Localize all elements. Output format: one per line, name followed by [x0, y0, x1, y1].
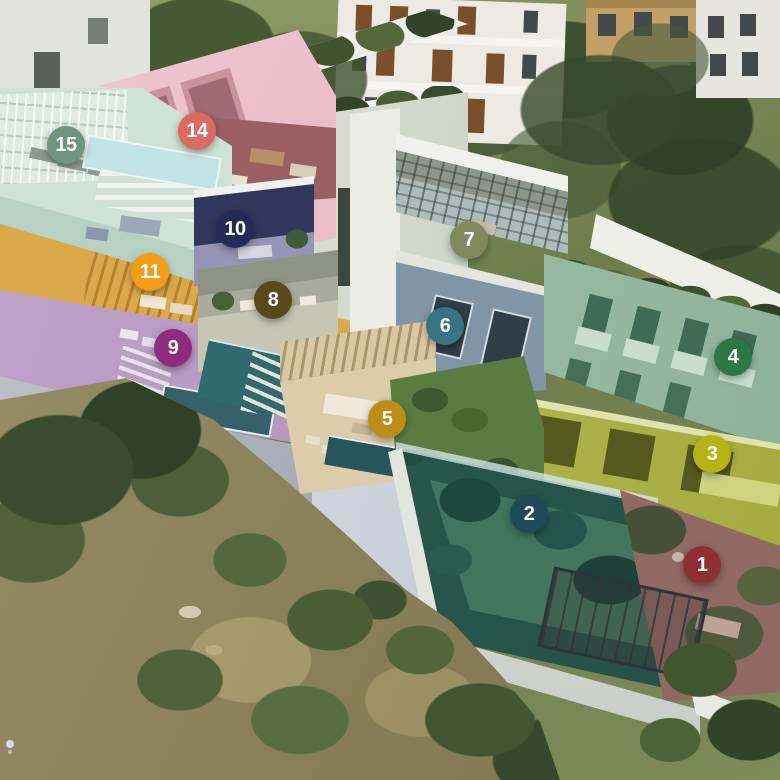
chair	[119, 329, 138, 341]
deck-table	[249, 148, 285, 167]
unit-badge-6[interactable]: 6	[426, 307, 464, 345]
chair	[305, 435, 320, 445]
unit-badge-number: 2	[524, 503, 535, 526]
trees-southeast	[640, 610, 780, 780]
unit-badge-number: 14	[186, 120, 207, 143]
unit-badge-4[interactable]: 4	[714, 338, 752, 376]
unit-badge-number: 6	[440, 315, 451, 338]
window	[602, 428, 655, 481]
balcony	[670, 350, 707, 376]
unit-badge-number: 15	[55, 134, 76, 157]
unit-badge-8[interactable]: 8	[254, 281, 292, 319]
potted-plant	[210, 290, 236, 312]
potted-plant	[284, 228, 310, 250]
unit-badge-number: 9	[168, 337, 179, 360]
unit-badge-11[interactable]: 11	[131, 253, 169, 291]
unit-badge-9[interactable]: 9	[154, 329, 192, 367]
unit-badge-number: 3	[707, 443, 718, 466]
street-lamp	[6, 740, 14, 748]
unit-badge-number: 5	[382, 408, 393, 431]
unit-badge-3[interactable]: 3	[693, 435, 731, 473]
unit-badge-5[interactable]: 5	[368, 400, 406, 438]
chair	[300, 295, 317, 305]
unit-badge-number: 8	[268, 289, 279, 312]
unit-badge-number: 4	[728, 346, 739, 369]
unit-badge-1[interactable]: 1	[683, 546, 721, 584]
unit-badge-number: 10	[224, 218, 245, 241]
unit-badge-2[interactable]: 2	[510, 495, 548, 533]
balcony	[574, 326, 611, 352]
unit-badge-15[interactable]: 15	[47, 126, 85, 164]
unit-badge-number: 11	[140, 261, 160, 284]
unit-badge-10[interactable]: 10	[216, 210, 254, 248]
balcony	[699, 471, 780, 507]
unit-badge-7[interactable]: 7	[450, 221, 488, 259]
balcony	[622, 338, 659, 364]
unit-badge-number: 7	[464, 229, 475, 252]
unit-badge-number: 1	[697, 554, 708, 577]
unit-badge-14[interactable]: 14	[178, 112, 216, 150]
aerial-render-scene: 1 2 3 4 5 6 7 8 9 10 11 14 15	[0, 0, 780, 780]
sun-lounger	[238, 245, 273, 259]
